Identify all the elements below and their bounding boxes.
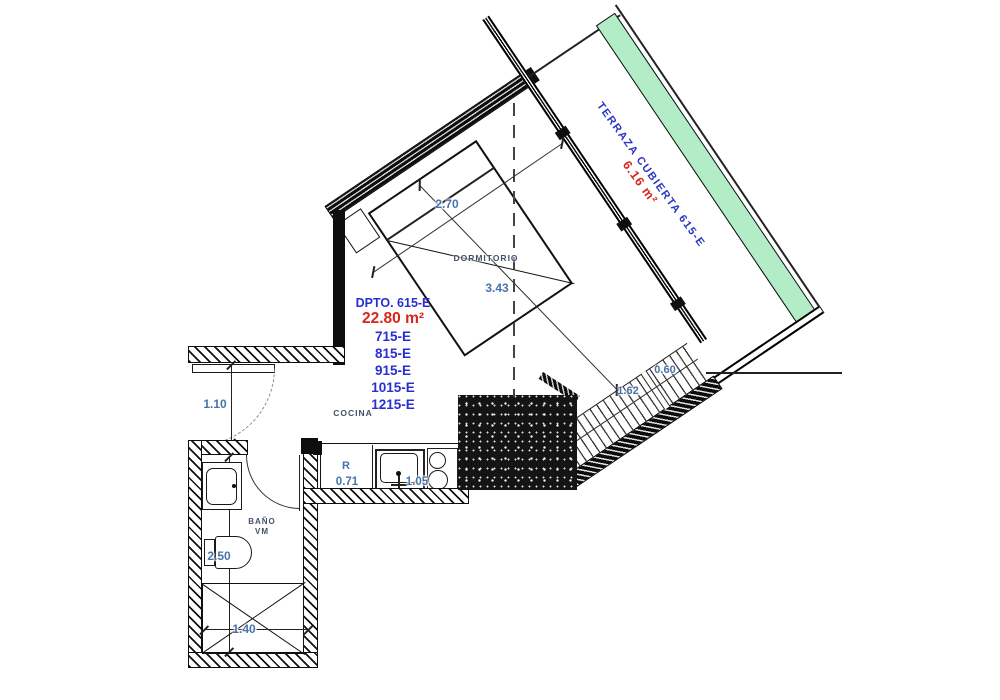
stacked-unit: 1015-E bbox=[331, 379, 455, 396]
faucet-handles bbox=[391, 484, 407, 486]
bathroom-south-wall bbox=[188, 652, 318, 668]
entry-wall bbox=[188, 346, 345, 363]
kitchen-label: COCINA bbox=[333, 408, 373, 418]
neighbor-boundary-line bbox=[706, 372, 842, 374]
counter-end-stub bbox=[313, 441, 322, 455]
cooktop-burner bbox=[429, 452, 446, 469]
kitchen-south-wall bbox=[303, 488, 469, 504]
dim-closet-depth: 0.60 bbox=[654, 364, 675, 376]
unit-title: DPTO. 615-E bbox=[331, 296, 455, 310]
bedroom-label: DORMITORIO bbox=[453, 253, 518, 263]
cooktop-burner bbox=[428, 470, 448, 490]
stacked-unit: 915-E bbox=[331, 362, 455, 379]
dim-bedroom-diagonal: 3.43 bbox=[485, 281, 508, 295]
unit-info-block: DPTO. 615-E 22.80 m² 715-E 815-E 915-E 1… bbox=[331, 296, 455, 413]
hall-dim-line bbox=[231, 365, 232, 443]
bathroom-name: BAÑO bbox=[248, 517, 276, 526]
unit-area: 22.80 m² bbox=[331, 310, 455, 328]
vanity-drain bbox=[232, 484, 236, 488]
stacked-unit: 715-E bbox=[331, 328, 455, 345]
dim-shower-width: 1.40 bbox=[232, 622, 255, 636]
faucet-stem bbox=[398, 474, 400, 488]
refrigerator-label: R bbox=[342, 460, 350, 472]
dim-counter: 1.05 bbox=[406, 476, 428, 488]
counter-divider bbox=[372, 445, 373, 491]
stacked-unit: 815-E bbox=[331, 345, 455, 362]
bathroom-door-swing bbox=[246, 455, 300, 509]
dim-bedroom-width: 2.70 bbox=[435, 197, 458, 211]
faucet-dot bbox=[396, 471, 401, 476]
terrace-name: TERRAZA CUBIERTA 615-E bbox=[594, 100, 707, 250]
dim-closet-length: 1.62 bbox=[617, 385, 638, 397]
dim-tick bbox=[419, 179, 421, 191]
bathroom-door-leaf bbox=[299, 455, 300, 511]
dim-refrigerator: 0.71 bbox=[336, 476, 358, 488]
duct-shaft bbox=[458, 395, 577, 490]
dim-hall-width: 1.10 bbox=[203, 397, 226, 411]
bathroom-label: BAÑO VM bbox=[248, 517, 276, 537]
dim-bathroom-length: 2.50 bbox=[207, 549, 230, 563]
floor-plan: TERRAZA CUBIERTA 615-E 6.16 m² DPTO. 615… bbox=[0, 0, 1000, 700]
projection-dashed-line bbox=[513, 103, 515, 397]
shower-dim-line bbox=[204, 629, 308, 630]
bathroom-east-wall bbox=[303, 453, 318, 668]
bathroom-sub: VM bbox=[255, 527, 269, 536]
